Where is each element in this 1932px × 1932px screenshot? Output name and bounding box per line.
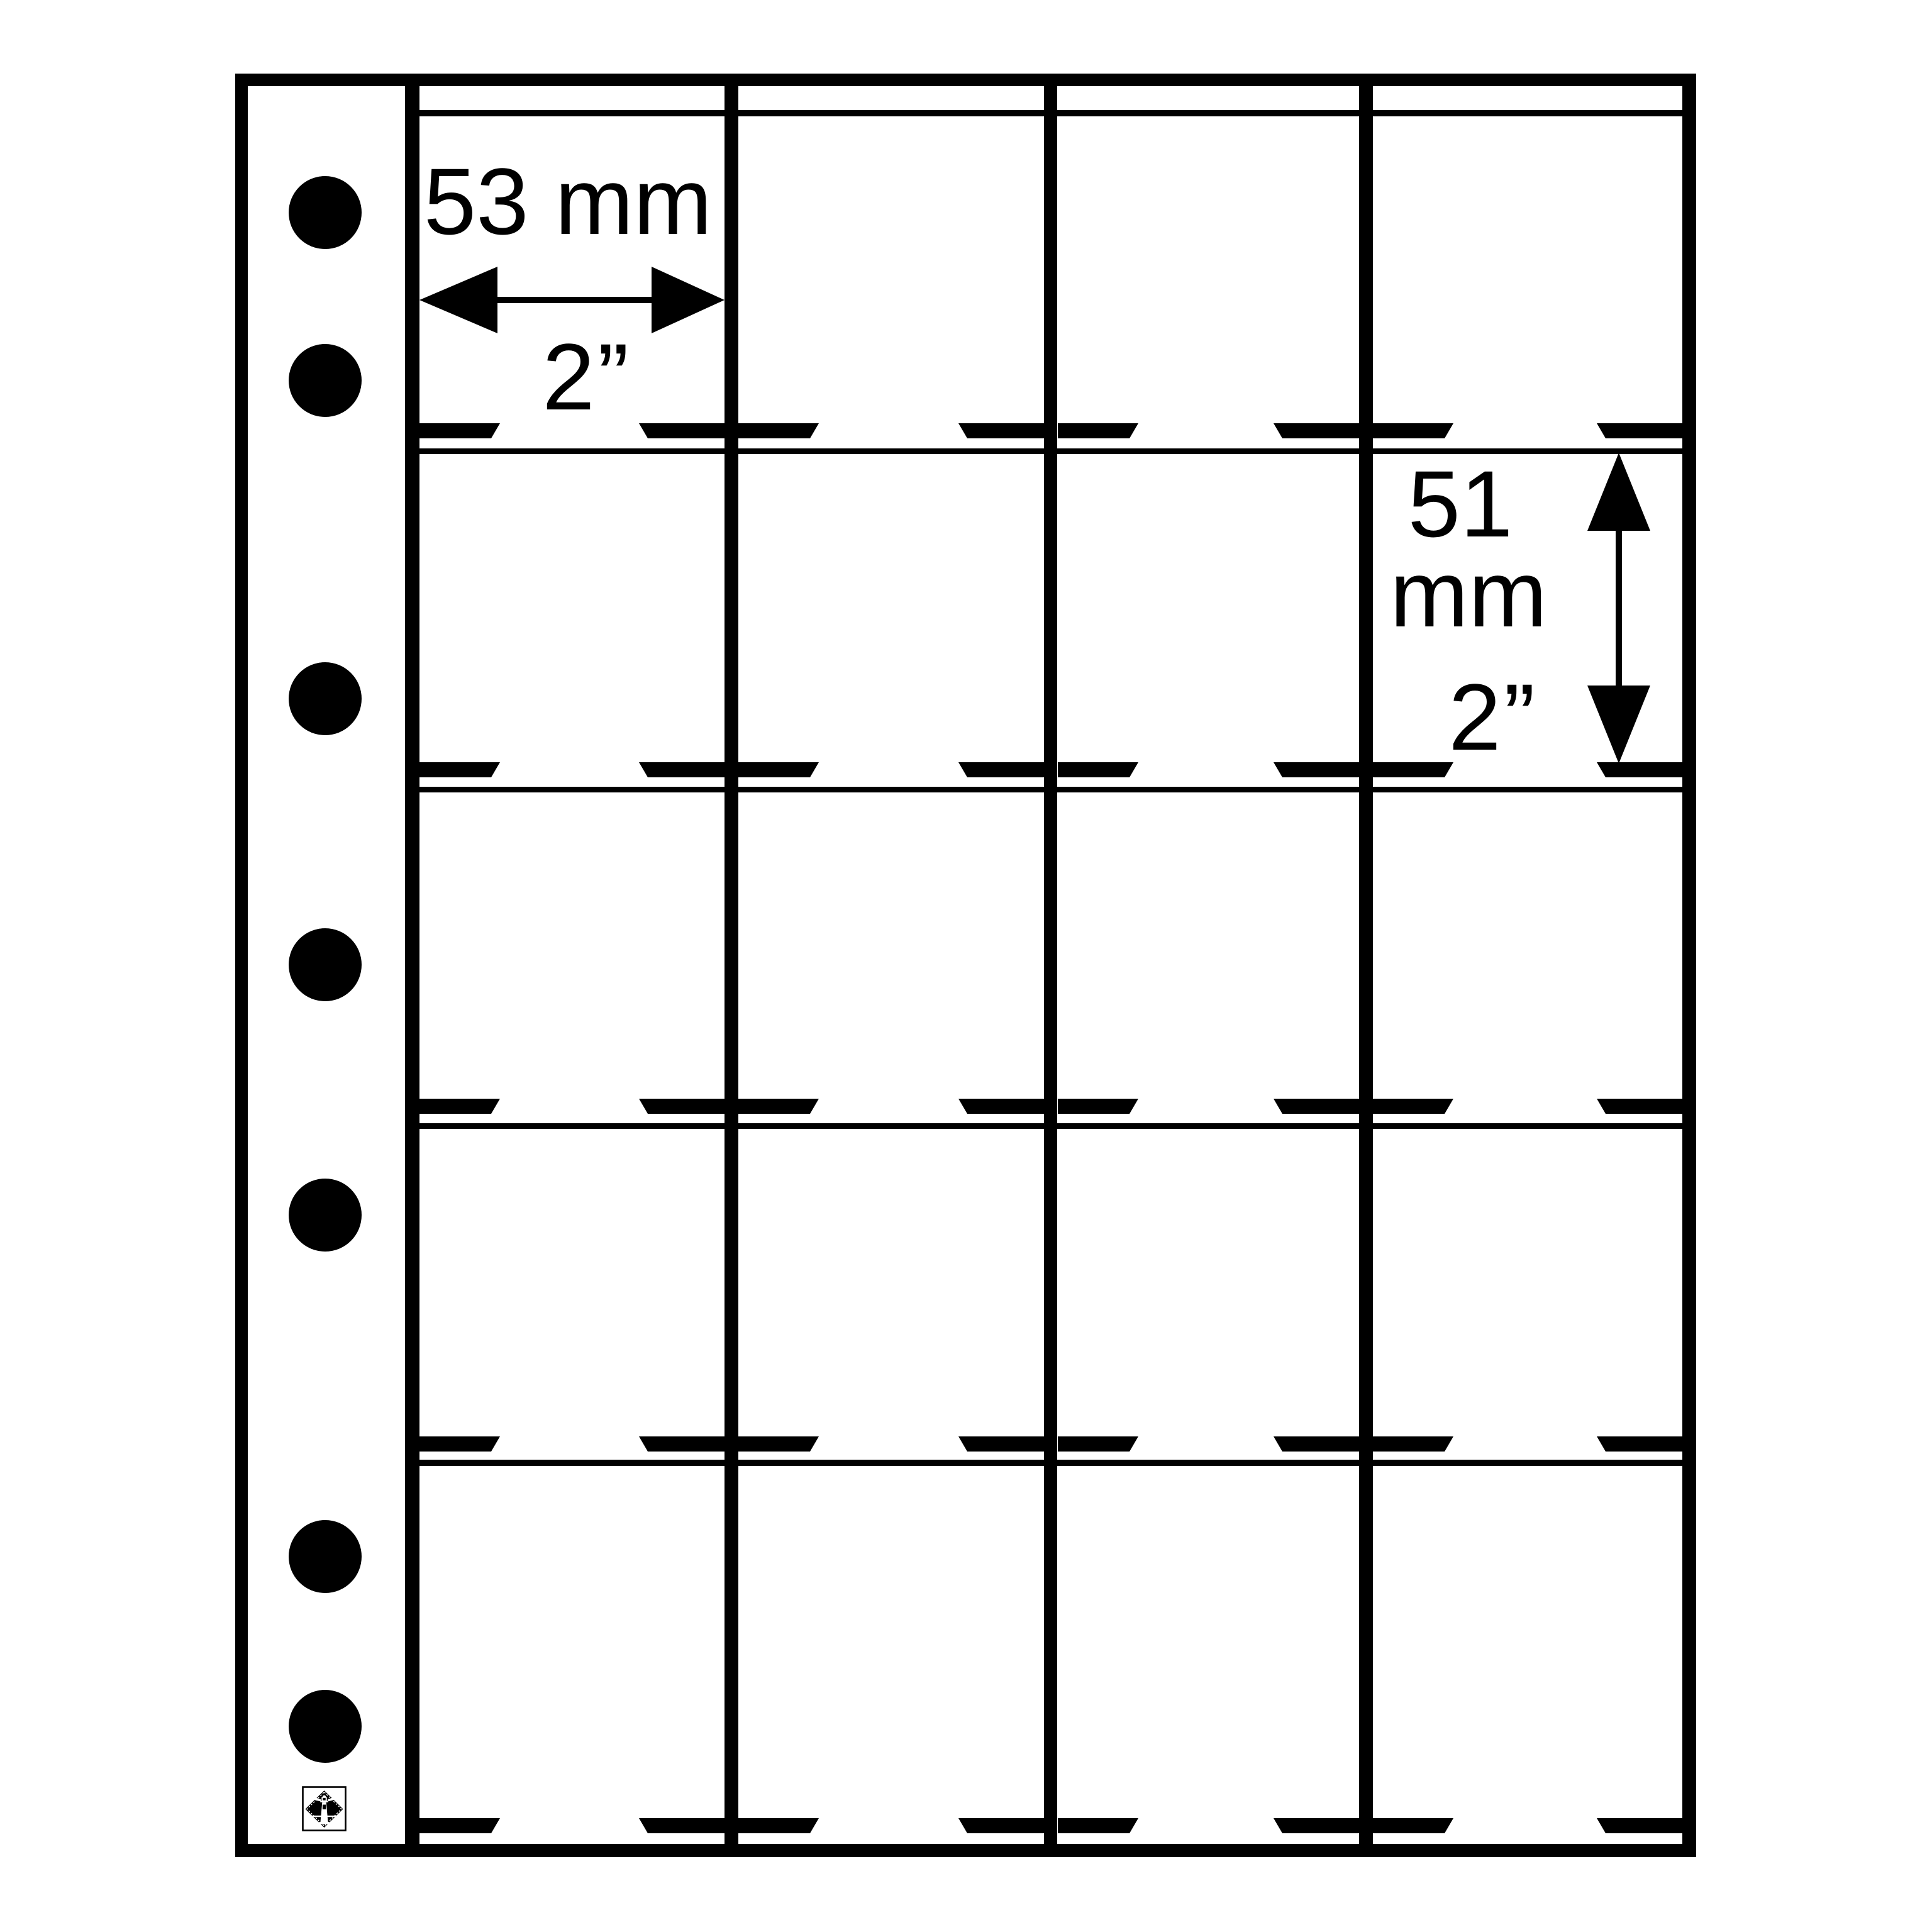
svg-text:53 mm: 53 mm bbox=[424, 148, 712, 254]
svg-text:mm: mm bbox=[1390, 541, 1547, 647]
svg-text:2: 2 bbox=[1448, 664, 1501, 770]
svg-text:”: ” bbox=[597, 324, 629, 430]
svg-text:”: ” bbox=[1504, 664, 1535, 770]
svg-text:2: 2 bbox=[542, 324, 594, 430]
